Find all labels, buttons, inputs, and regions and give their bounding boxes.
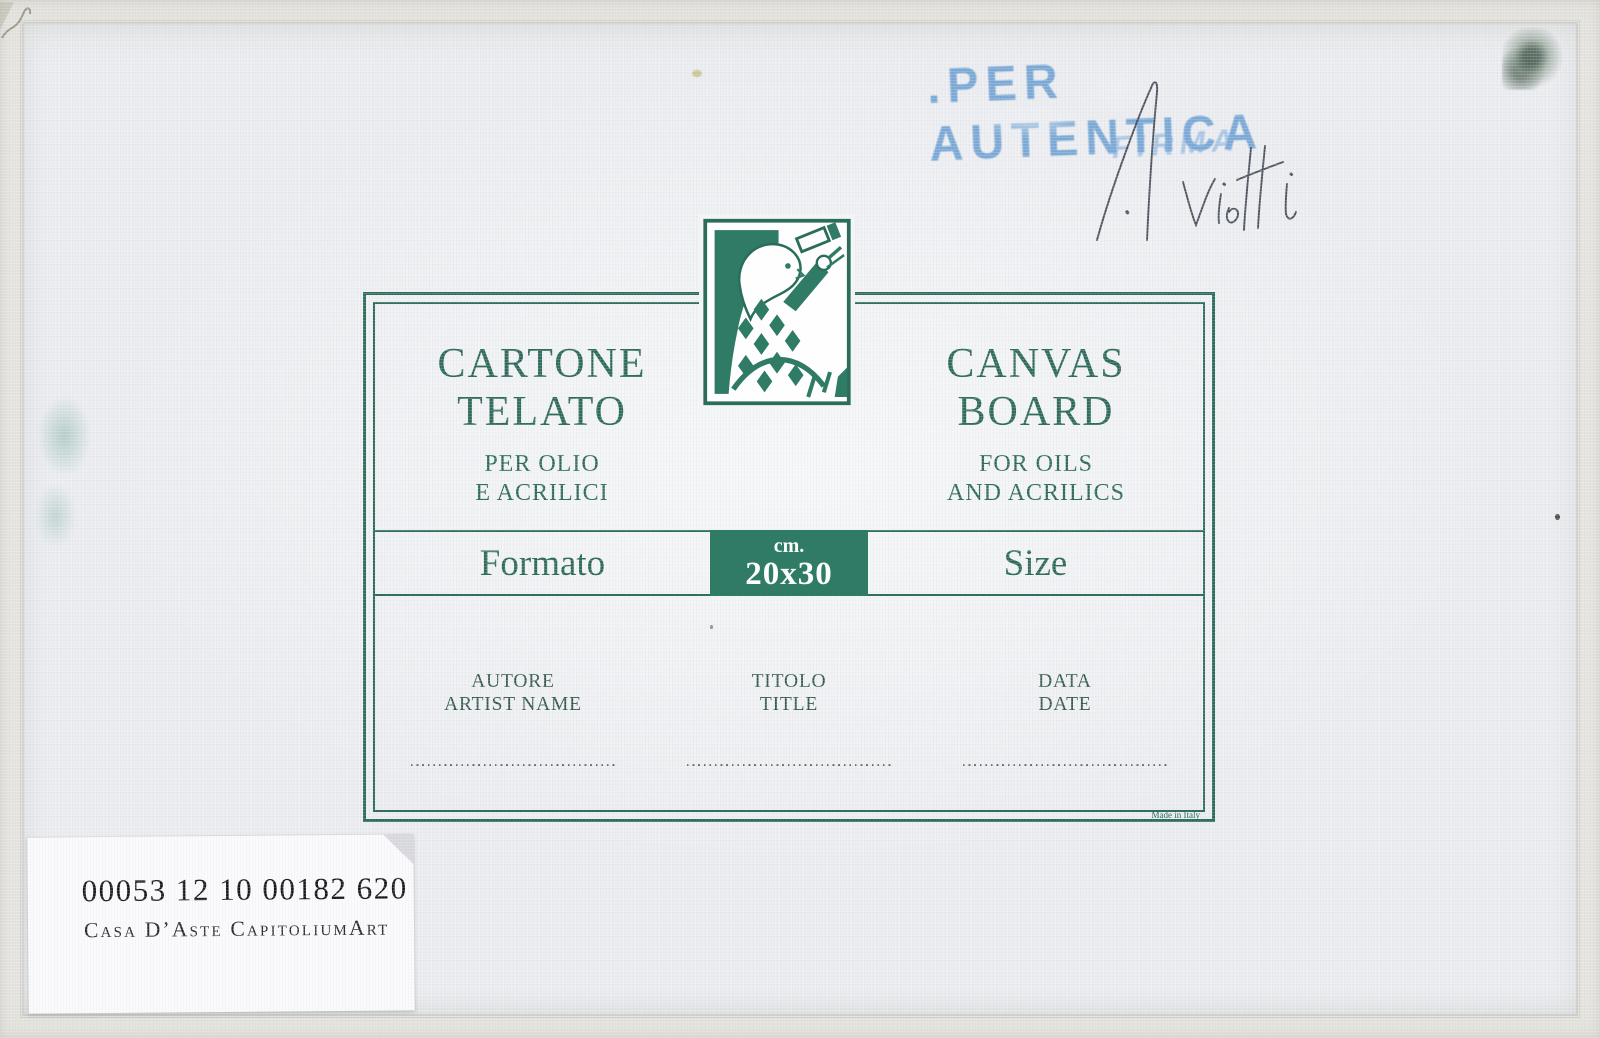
made-in-italy-text: Made in Italy — [1152, 811, 1201, 820]
auction-house-name: Casa D’Aste CapitoliumArt — [84, 915, 414, 943]
italian-title-column: CARTONE TELATO PER OLIO E ACRILICI — [375, 304, 709, 530]
field-title-label: TITLE — [651, 693, 927, 716]
paint-stain-left — [18, 372, 102, 572]
size-unit: cm. — [710, 535, 868, 557]
speck-right-edge — [1555, 514, 1560, 520]
fill-in-line — [963, 764, 1168, 766]
field-data-label: DATA — [927, 670, 1203, 693]
paint-blob-top-right — [1502, 28, 1564, 90]
field-title: TITOLO TITLE — [651, 596, 927, 810]
sticker-folded-corner — [383, 834, 413, 864]
field-author: AUTORE ARTIST NAME — [375, 596, 651, 810]
title-telato: TELATO — [375, 388, 709, 436]
title-canvas: CANVAS — [869, 340, 1203, 388]
field-date: DATA DATE — [927, 596, 1203, 810]
english-title-column: CANVAS BOARD FOR OILS AND ACRILICS — [869, 304, 1203, 530]
subtitle-per-olio: PER OLIO — [375, 450, 709, 479]
subtitle-e-acrilici: E ACRILICI — [375, 479, 709, 508]
harlequin-painter-illustration — [699, 214, 855, 410]
subtitle-and-acrilics: AND ACRILICS — [869, 479, 1203, 508]
title-board: BOARD — [869, 388, 1203, 436]
formato-label: Formato — [375, 532, 710, 594]
lot-number: 00053 12 10 00182 620 — [82, 870, 414, 909]
canvas-board-back-photo: .PER AUTENTICA FIRMA CARTONE — [0, 0, 1600, 1038]
fill-in-line — [411, 764, 616, 766]
field-titolo-label: TITOLO — [651, 670, 927, 693]
fill-in-line — [687, 764, 892, 766]
subtitle-for-oils: FOR OILS — [869, 450, 1203, 479]
fill-in-fields-section: AUTORE ARTIST NAME TITOLO TITLE DATA DAT… — [375, 596, 1203, 810]
title-cartone: CARTONE — [375, 340, 709, 388]
size-value: 20x30 — [710, 557, 868, 591]
size-value-box: cm. 20x30 — [710, 530, 868, 596]
speck-yellow — [692, 70, 702, 77]
auction-house-sticker: 00053 12 10 00182 620 Casa D’Aste Capito… — [27, 834, 415, 1013]
authenticity-stamp: .PER AUTENTICA FIRMA — [926, 40, 1430, 169]
size-label: Size — [868, 532, 1203, 594]
size-row: Formato cm. 20x30 Size — [375, 530, 1203, 596]
loose-thread — [0, 0, 60, 60]
field-artist-name-label: ARTIST NAME — [375, 693, 651, 716]
field-date-label: DATE — [927, 693, 1203, 716]
field-autore-label: AUTORE — [375, 670, 651, 693]
